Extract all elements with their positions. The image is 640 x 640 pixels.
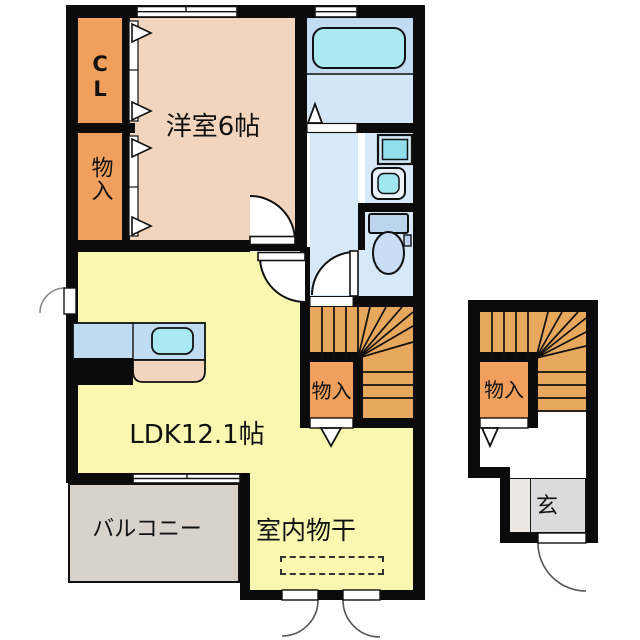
washroom-pass-floor bbox=[358, 250, 365, 296]
balcony-label: バルコニー bbox=[87, 516, 207, 544]
wall-balcony-laundry bbox=[240, 473, 250, 600]
stairs-main-column-floor bbox=[363, 358, 413, 418]
toilet-floor bbox=[365, 212, 413, 296]
laundry-pole-outline bbox=[280, 556, 384, 575]
wall-toilet-top bbox=[358, 203, 425, 212]
closet-cl-label: CL bbox=[85, 48, 115, 106]
entry-storage-label: 物入 bbox=[481, 377, 527, 403]
stairs-main-floor bbox=[310, 307, 413, 358]
wall-entry-bottom bbox=[500, 533, 598, 543]
wall-stair-storage-right bbox=[353, 352, 363, 428]
entrance-label: 玄 bbox=[535, 494, 559, 520]
wall-toilet-left bbox=[358, 203, 365, 250]
ldk-label: LDK12.1帖 bbox=[117, 420, 277, 452]
wall-bottom bbox=[240, 590, 425, 600]
wall-stairblock-bottom bbox=[353, 418, 425, 428]
wall-entry-top bbox=[468, 300, 598, 312]
closet-upper-label: 物入 bbox=[86, 150, 114, 208]
stairs-entry-column-floor bbox=[538, 358, 586, 412]
ldk-floor-east bbox=[300, 428, 413, 473]
wall-entry-storage-right bbox=[528, 352, 538, 428]
wall-entry-left bbox=[468, 300, 480, 478]
washroom-floor bbox=[310, 133, 358, 296]
wall-washroom-bottom-stub bbox=[300, 296, 310, 307]
western-room-label: 洋室6帖 bbox=[133, 112, 293, 144]
wall-closet-mid bbox=[66, 123, 135, 133]
entry-storage-door-icon bbox=[480, 418, 528, 446]
wall-washroom-bottom bbox=[353, 296, 425, 307]
wall-bath-washroom bbox=[357, 123, 425, 133]
wall-entry-left-lower bbox=[500, 467, 510, 543]
wall-western-south bbox=[66, 240, 250, 252]
entrance-step-strip bbox=[508, 478, 530, 533]
wall-balcony-top bbox=[66, 473, 250, 483]
bath-tub-zone-floor bbox=[307, 18, 413, 75]
wall-entry-right bbox=[586, 300, 598, 543]
wall-top bbox=[66, 5, 425, 18]
wall-western-bath bbox=[295, 5, 307, 247]
stair-storage-label: 物入 bbox=[309, 378, 354, 404]
floor-plan: CL 物入 洋室6帖 LDK12.1帖 バルコニー 室内物干 物入 物入 玄 bbox=[0, 0, 640, 640]
bath-floor bbox=[307, 75, 413, 123]
indoor-laundry-label: 室内物干 bbox=[254, 516, 358, 546]
vanity-nook-floor bbox=[365, 133, 413, 203]
wall-left bbox=[66, 5, 78, 473]
